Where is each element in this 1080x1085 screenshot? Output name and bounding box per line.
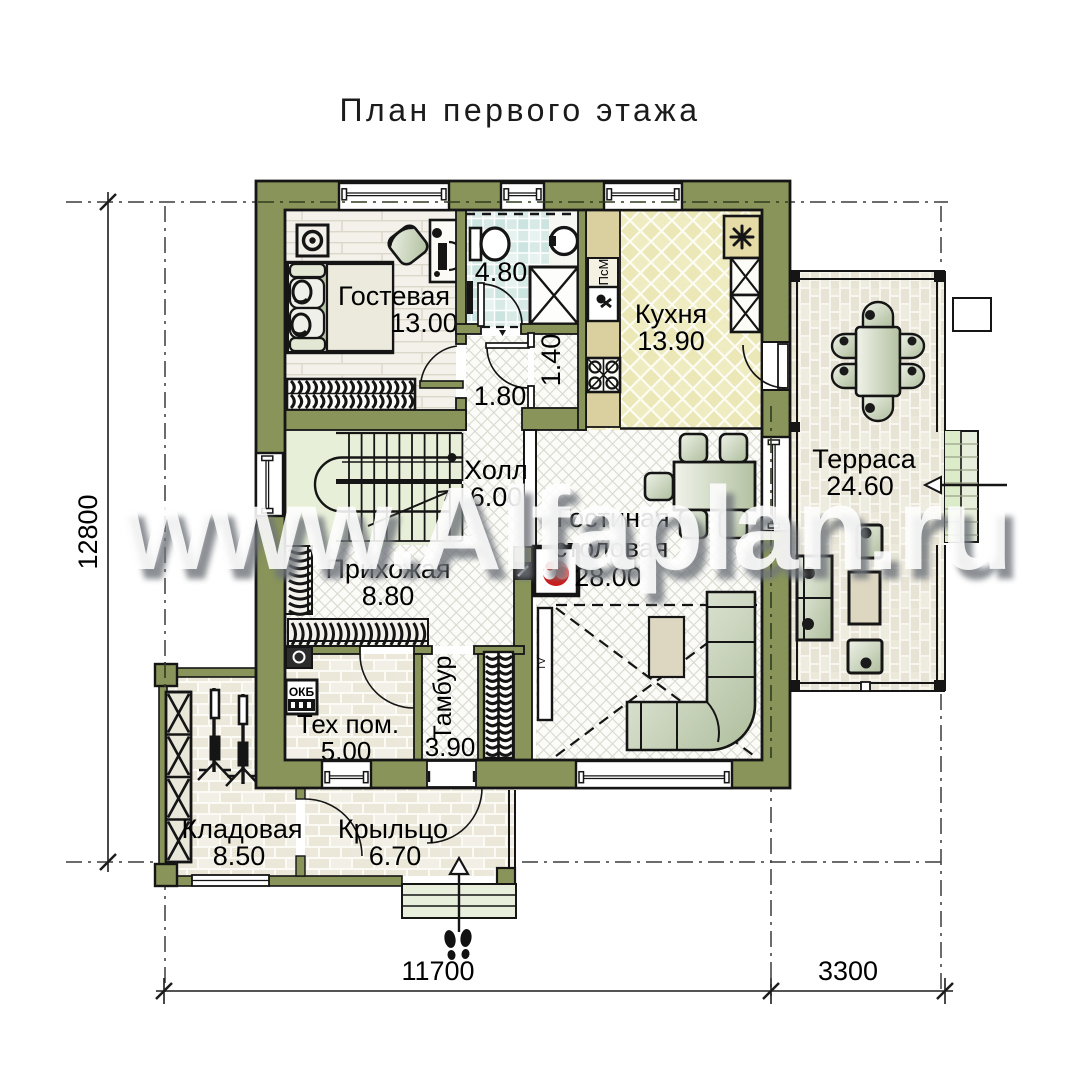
svg-text:Кладовая: Кладовая xyxy=(182,814,303,844)
svg-text:6.70: 6.70 xyxy=(369,841,422,871)
svg-text:План первого этажа: План первого этажа xyxy=(340,92,701,128)
svg-text:3300: 3300 xyxy=(818,956,878,986)
svg-text:Крыльцо: Крыльцо xyxy=(338,814,448,844)
svg-text:Тамбур: Тамбур xyxy=(429,656,457,741)
svg-text:Кухня: Кухня xyxy=(635,299,707,329)
svg-text:www.Alfaplan.ru: www.Alfaplan.ru xyxy=(120,463,1011,595)
svg-text:Тех пом.: Тех пом. xyxy=(297,709,399,739)
svg-text:Гостевая: Гостевая xyxy=(338,281,450,311)
svg-text:8.50: 8.50 xyxy=(213,841,266,871)
svg-text:13.00: 13.00 xyxy=(390,308,458,338)
svg-text:3.90: 3.90 xyxy=(425,732,476,762)
svg-text:13.90: 13.90 xyxy=(637,326,705,356)
svg-text:12800: 12800 xyxy=(73,494,103,569)
svg-text:1.40: 1.40 xyxy=(536,334,566,387)
svg-text:ПсМ: ПсМ xyxy=(596,259,611,286)
svg-text:ОКБ: ОКБ xyxy=(289,685,315,699)
svg-text:1.80: 1.80 xyxy=(474,381,527,411)
svg-text:11700: 11700 xyxy=(401,956,474,986)
svg-text:TV: TV xyxy=(537,657,548,670)
